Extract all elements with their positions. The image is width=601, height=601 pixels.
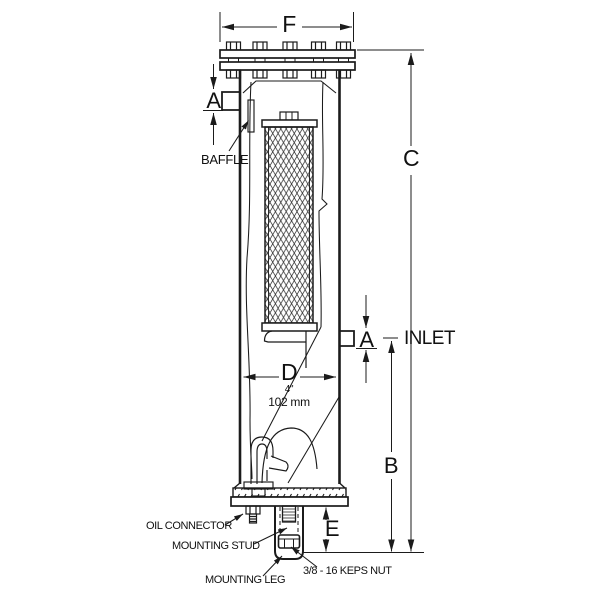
diameter-value-inches: 4" xyxy=(274,385,304,395)
technical-drawing-canvas: F A BAFFLE C A INLET D 4" 102 mm B E OIL… xyxy=(0,0,601,601)
dimension-label-a-outlet: A xyxy=(203,90,224,112)
dimension-label-f: F xyxy=(279,13,299,36)
diameter-value-mm: 102 mm xyxy=(264,396,314,408)
dimension-label-b: B xyxy=(381,455,401,477)
mounting-stud-label: MOUNTING STUD xyxy=(172,541,251,552)
filter-element xyxy=(262,112,317,368)
drawing-root-group xyxy=(203,12,424,576)
inlet-port xyxy=(339,331,354,346)
dimension-label-c: C xyxy=(401,147,421,170)
baffle-label: BAFFLE xyxy=(201,153,248,166)
mounting-leg-label: MOUNTING LEG xyxy=(205,575,277,586)
oil-connector-label: OIL CONNECTOR xyxy=(146,521,221,532)
dimension-label-d: D xyxy=(279,361,299,384)
float-and-pickup-tube xyxy=(244,428,317,496)
dimension-label-a-inlet: A xyxy=(356,329,377,351)
oil-connector xyxy=(246,506,260,523)
baffle-plate xyxy=(248,100,254,132)
bottom-flange xyxy=(231,483,348,506)
dimension-label-e: E xyxy=(323,518,341,540)
dimension-b xyxy=(303,338,424,553)
mounting-leg xyxy=(275,506,303,559)
inlet-label: INLET xyxy=(404,329,455,348)
keps-nut-label: 3/8 - 16 KEPS NUT xyxy=(303,566,392,577)
outlet-port xyxy=(222,92,240,110)
filter-assembly-line-art xyxy=(0,0,601,601)
